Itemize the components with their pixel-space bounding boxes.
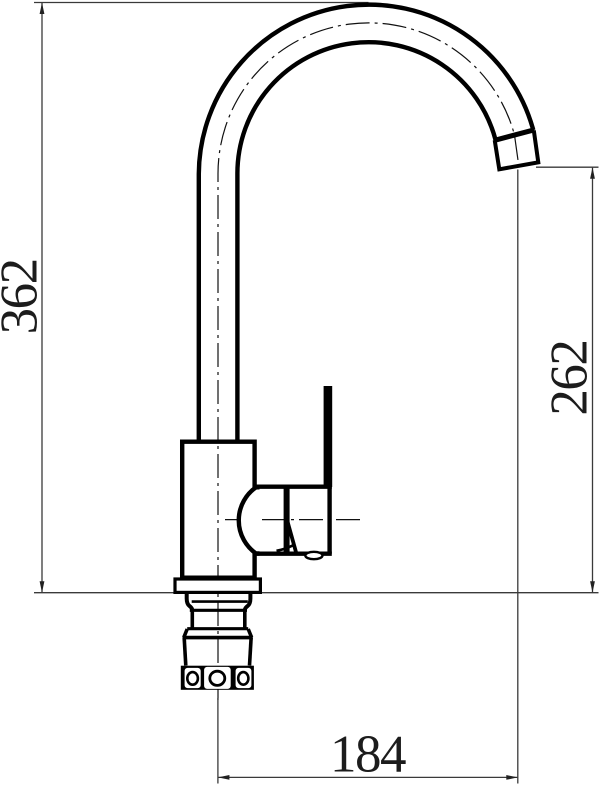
svg-text:362: 362 [0,259,49,334]
svg-text:262: 262 [541,341,599,416]
svg-text:184: 184 [330,726,406,784]
